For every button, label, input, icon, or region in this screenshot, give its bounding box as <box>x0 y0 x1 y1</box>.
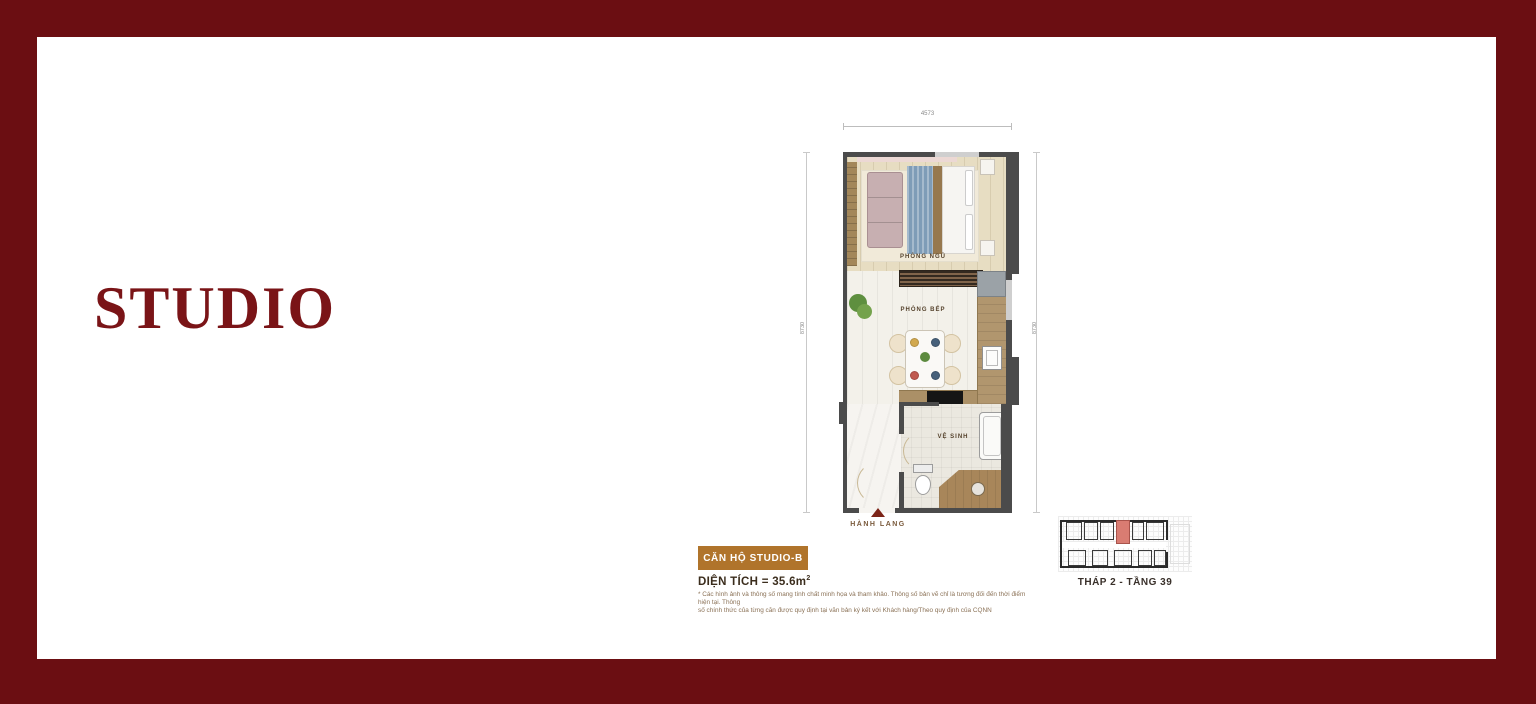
locator-unit <box>1084 522 1098 540</box>
locator-unit <box>1146 522 1164 540</box>
dimension-label-left: 8730 <box>800 322 806 334</box>
bathroom-wall <box>899 404 904 434</box>
locator-corridor <box>1062 542 1166 548</box>
wall <box>843 152 1012 157</box>
bed-frame <box>933 166 942 254</box>
locator-wall <box>1060 566 1168 568</box>
wardrobe <box>847 162 857 266</box>
nightstand <box>980 159 995 175</box>
window <box>935 152 979 157</box>
bed-blanket <box>907 166 933 254</box>
locator-unit <box>1100 522 1114 540</box>
bedroom-label: PHÒNG NGỦ <box>863 254 983 260</box>
locator-wall <box>1166 520 1168 540</box>
entry-door-arc <box>857 462 899 504</box>
pillow <box>965 214 973 250</box>
disclaimer-line-1: * Các hình ảnh và thông số mang tính chấ… <box>698 591 1033 607</box>
entrance-label: HÀNH LANG <box>833 521 923 528</box>
area-value: DIỆN TÍCH = 35.6m <box>698 576 806 588</box>
locator-unit <box>1132 522 1144 540</box>
locator-unit <box>1154 550 1166 566</box>
locator-wall <box>1166 552 1168 568</box>
plate <box>931 338 940 347</box>
bathroom-wall <box>899 472 904 513</box>
dimension-label-right: 8730 <box>1032 322 1038 334</box>
pillow <box>965 170 973 206</box>
floor-locator-plate <box>1058 516 1192 572</box>
wall <box>1006 152 1019 274</box>
area-text: DIỆN TÍCH = 35.6m2 <box>698 575 811 588</box>
slide-inner: STUDIO 4573 8730 8730 <box>37 37 1496 659</box>
unit-badge: CĂN HỘ STUDIO-B <box>698 546 808 570</box>
dimension-line-left <box>806 152 807 513</box>
page-title: STUDIO <box>94 274 336 343</box>
slat-cabinet <box>899 270 983 287</box>
wall <box>839 402 844 424</box>
plate <box>910 371 919 380</box>
area-superscript: 2 <box>806 575 810 582</box>
dimension-label-top: 4573 <box>843 111 1012 117</box>
plate <box>931 371 940 380</box>
kitchen-label: PHÒNG BẾP <box>868 307 978 313</box>
dimension-line-top <box>843 126 1012 127</box>
locator-unit <box>1066 522 1082 540</box>
kitchen-sink <box>982 346 1002 370</box>
locator-highlighted-unit <box>1116 520 1130 544</box>
wall <box>843 152 847 513</box>
window <box>1006 280 1012 320</box>
locator-caption: THÁP 2 - TẦNG 39 <box>1058 577 1192 588</box>
locator-unit <box>1138 550 1152 566</box>
bathroom-wall <box>899 402 939 406</box>
wall <box>1001 404 1012 513</box>
sofa <box>867 172 903 248</box>
apartment-outline: PHÒNG NGỦ PHÒNG BẾP VỆ SINH <box>843 152 1012 513</box>
wall <box>1006 357 1019 405</box>
locator-unit <box>1068 550 1086 566</box>
bathroom-label: VỆ SINH <box>911 434 995 440</box>
fridge <box>977 271 1006 297</box>
floor-plan: 4573 8730 8730 <box>798 103 1044 523</box>
curtain <box>857 157 957 162</box>
disclaimer-line-2: số chính thức của từng căn được quy định… <box>698 607 1033 615</box>
disclaimer-text: * Các hình ảnh và thông số mang tính chấ… <box>698 591 1033 615</box>
plant-icon <box>849 294 867 312</box>
slide-canvas: { "slide": { "title": "STUDIO" }, "plan"… <box>0 0 1536 704</box>
entrance-arrow-icon <box>871 508 885 517</box>
locator-unit <box>1114 550 1132 566</box>
locator-unit <box>1092 550 1108 566</box>
plate <box>910 338 919 347</box>
locator-annex <box>1170 524 1190 564</box>
vanity-sink <box>971 482 985 496</box>
toilet <box>913 464 933 473</box>
table-plant-icon <box>920 352 930 362</box>
